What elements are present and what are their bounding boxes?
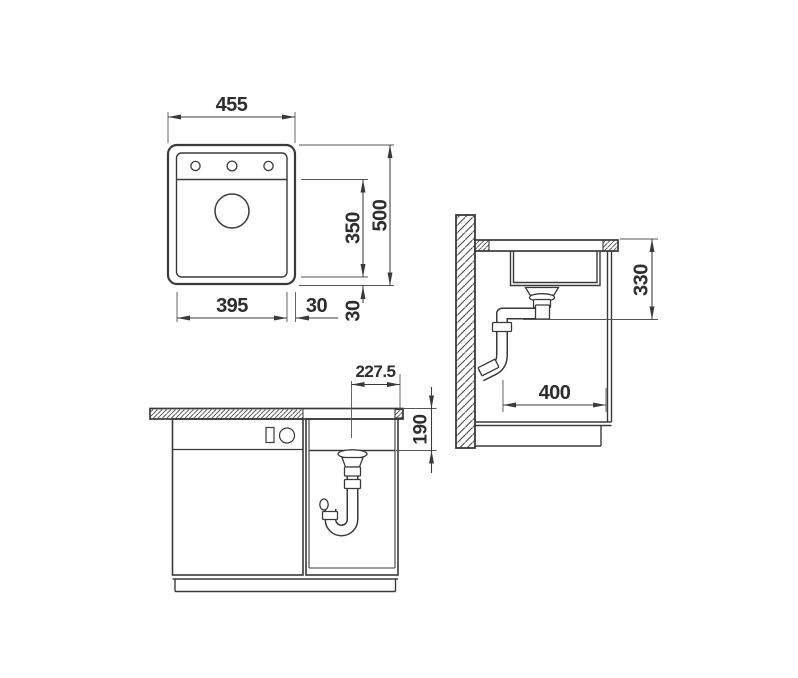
- countertop-side: [475, 240, 618, 251]
- dim-bowl-width: 395: [177, 292, 287, 322]
- wall-section: [456, 215, 475, 448]
- dim-bowl-height: 190: [396, 387, 437, 473]
- union-nut-side: [536, 305, 550, 319]
- dim-base-depth: 400: [503, 380, 606, 412]
- dim-label-30-front: 30: [343, 300, 365, 322]
- dim-label-30-right: 30: [306, 295, 328, 317]
- siphon-front: [320, 450, 367, 531]
- tap-hole-right: [264, 161, 273, 170]
- dim-label-330: 330: [631, 264, 653, 296]
- dim-label-190: 190: [411, 414, 432, 444]
- dim-label-500: 500: [370, 199, 392, 231]
- sink-outer-rim: [168, 145, 295, 284]
- bowl-section-side: [511, 251, 601, 286]
- strainer-nut-front: [345, 467, 361, 476]
- dim-overall-width: 455: [168, 94, 295, 143]
- tailpipe-nut-front: [345, 480, 361, 489]
- countertop-end-cut: [395, 410, 403, 419]
- cabinet-side-panel: [475, 251, 612, 446]
- dishwasher-control-dial: [280, 428, 295, 443]
- dim-label-455: 455: [216, 94, 248, 116]
- countertop-cut-left: [475, 240, 489, 251]
- tap-hole-left: [191, 161, 200, 170]
- dim-label-395: 395: [216, 295, 248, 317]
- countertop-front-hatch: [150, 409, 303, 420]
- side-view: 330 400: [456, 215, 658, 448]
- drain-hole: [215, 194, 249, 228]
- dim-offset-right: 30: [296, 292, 339, 322]
- dim-label-400: 400: [539, 382, 571, 404]
- dim-drain-center: 227.5: [352, 362, 401, 438]
- technical-drawing-canvas: 455 500 350 30 395: [0, 0, 798, 678]
- front-view: 227.5 190: [150, 362, 437, 592]
- outlet-cap-front: [320, 499, 328, 510]
- sink-plan-body: [168, 145, 295, 284]
- riser-nut-side: [493, 323, 512, 332]
- plinth: [173, 579, 399, 592]
- dishwasher: [173, 419, 304, 575]
- countertop-cut-right: [603, 240, 618, 251]
- strainer-body-front: [342, 458, 363, 468]
- dim-label-227-5: 227.5: [355, 362, 395, 381]
- sink-dimension-drawing: 455 500 350 30 395: [0, 0, 798, 678]
- riser-nut-front: [323, 512, 338, 520]
- dishwasher-control-slot: [266, 428, 274, 443]
- dim-bowl-depth: 350: [301, 180, 368, 278]
- dim-offset-front: 30: [343, 286, 365, 322]
- top-view: 455 500 350 30 395: [168, 94, 394, 322]
- sink-inner-bowl-outline: [177, 153, 288, 277]
- dim-label-350: 350: [343, 212, 365, 244]
- siphon-side: [478, 288, 559, 377]
- tap-hole-center: [227, 161, 237, 171]
